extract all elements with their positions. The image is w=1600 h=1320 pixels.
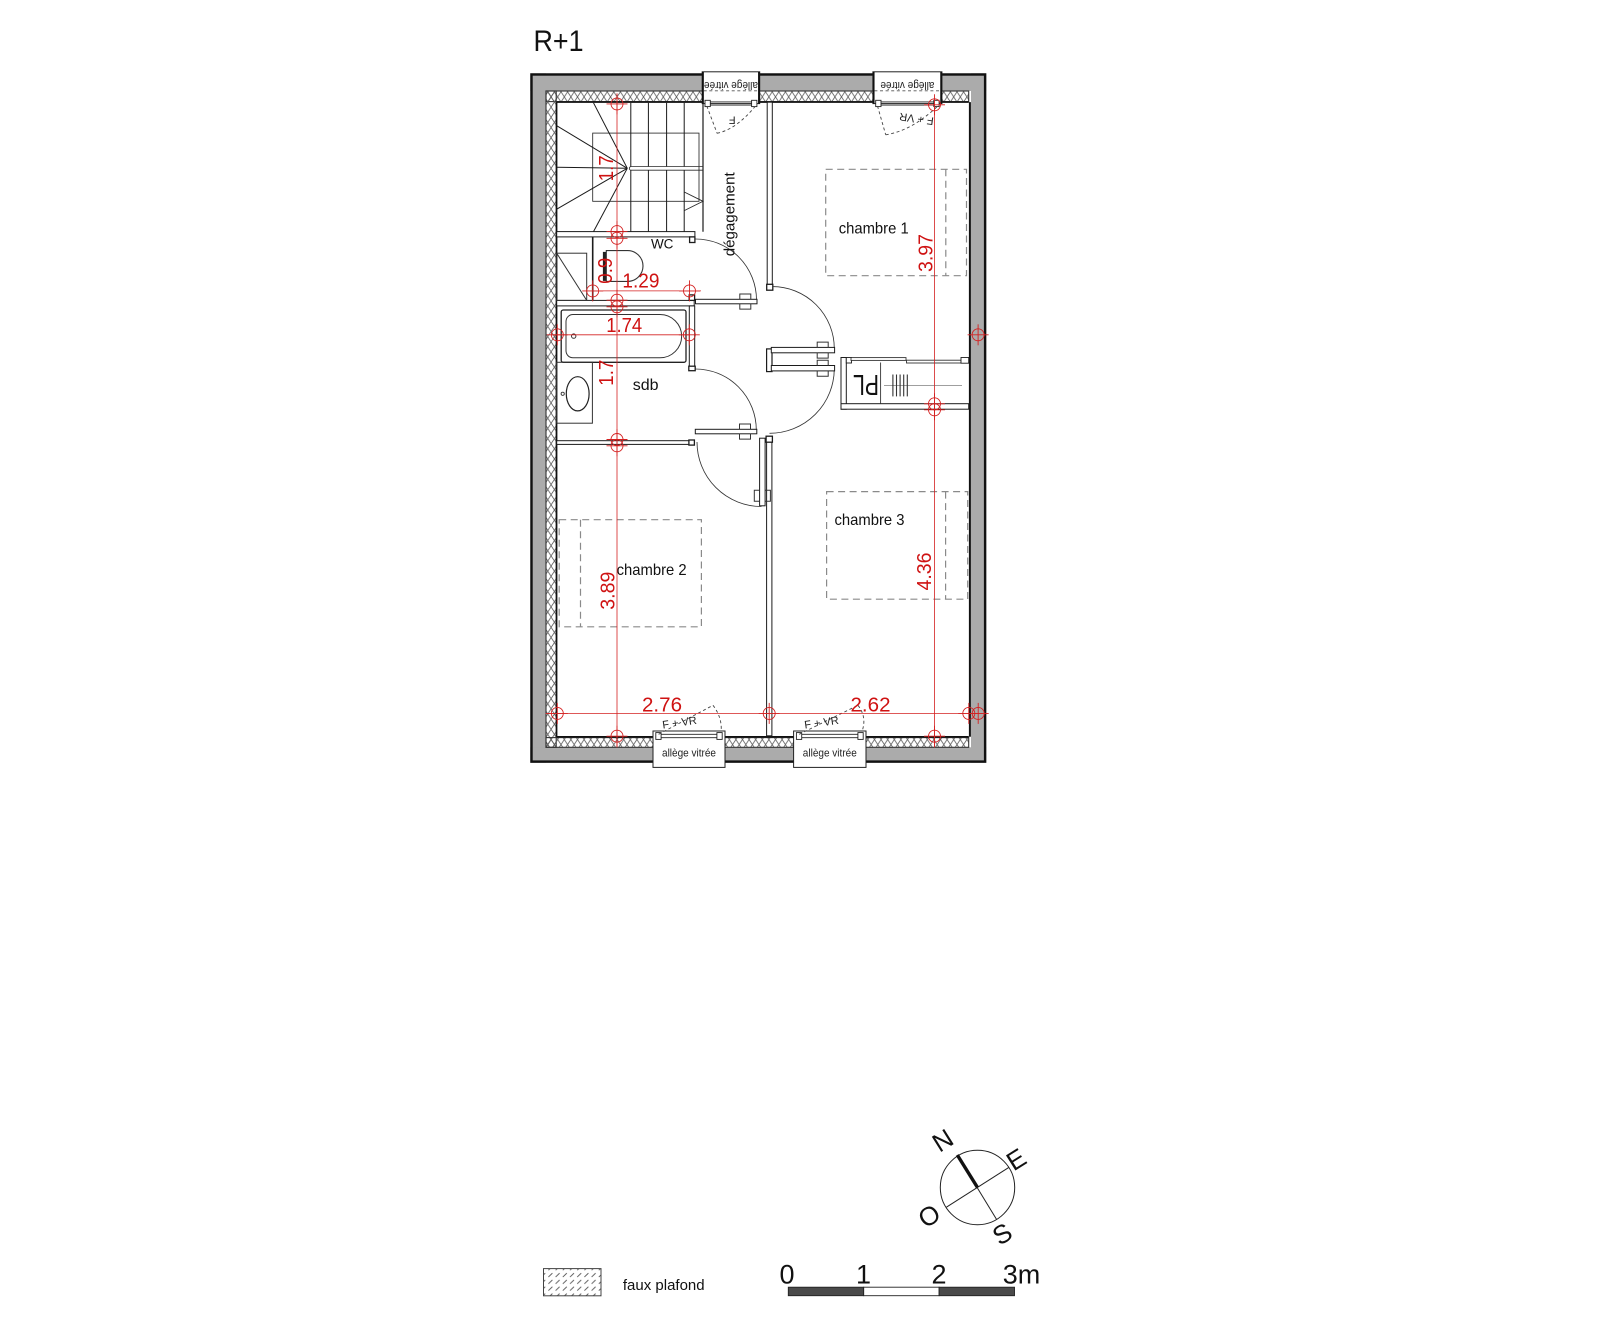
svg-text:allège vitrée: allège vitrée	[880, 79, 934, 91]
svg-text:R+1: R+1	[534, 25, 584, 58]
svg-text:1.29: 1.29	[622, 271, 659, 293]
svg-text:4.36: 4.36	[914, 553, 936, 591]
svg-text:3m: 3m	[1003, 1260, 1041, 1290]
svg-text:2: 2	[931, 1260, 946, 1290]
svg-text:2.76: 2.76	[642, 694, 682, 716]
svg-text:chambre 1: chambre 1	[839, 221, 909, 238]
svg-text:PL: PL	[853, 368, 879, 400]
svg-text:2.62: 2.62	[851, 694, 891, 716]
svg-text:3.89: 3.89	[598, 572, 620, 610]
svg-text:WC: WC	[651, 236, 674, 251]
svg-text:3.97: 3.97	[916, 234, 938, 272]
svg-text:1: 1	[856, 1260, 871, 1290]
svg-text:chambre 3: chambre 3	[835, 512, 905, 529]
svg-text:F: F	[729, 114, 736, 126]
svg-text:sdb: sdb	[633, 377, 659, 394]
svg-text:allège vitrée: allège vitrée	[704, 79, 758, 91]
svg-text:1.7: 1.7	[596, 155, 618, 181]
svg-text:1.74: 1.74	[606, 315, 642, 337]
svg-text:1.7: 1.7	[596, 360, 618, 386]
svg-text:faux plafond: faux plafond	[623, 1277, 705, 1294]
svg-text:0.9: 0.9	[595, 258, 617, 284]
svg-text:0: 0	[779, 1260, 794, 1290]
svg-text:allège vitrée: allège vitrée	[662, 747, 716, 759]
svg-text:chambre 2: chambre 2	[617, 562, 687, 579]
svg-text:dégagement: dégagement	[721, 171, 738, 256]
svg-text:allège vitrée: allège vitrée	[803, 747, 857, 759]
